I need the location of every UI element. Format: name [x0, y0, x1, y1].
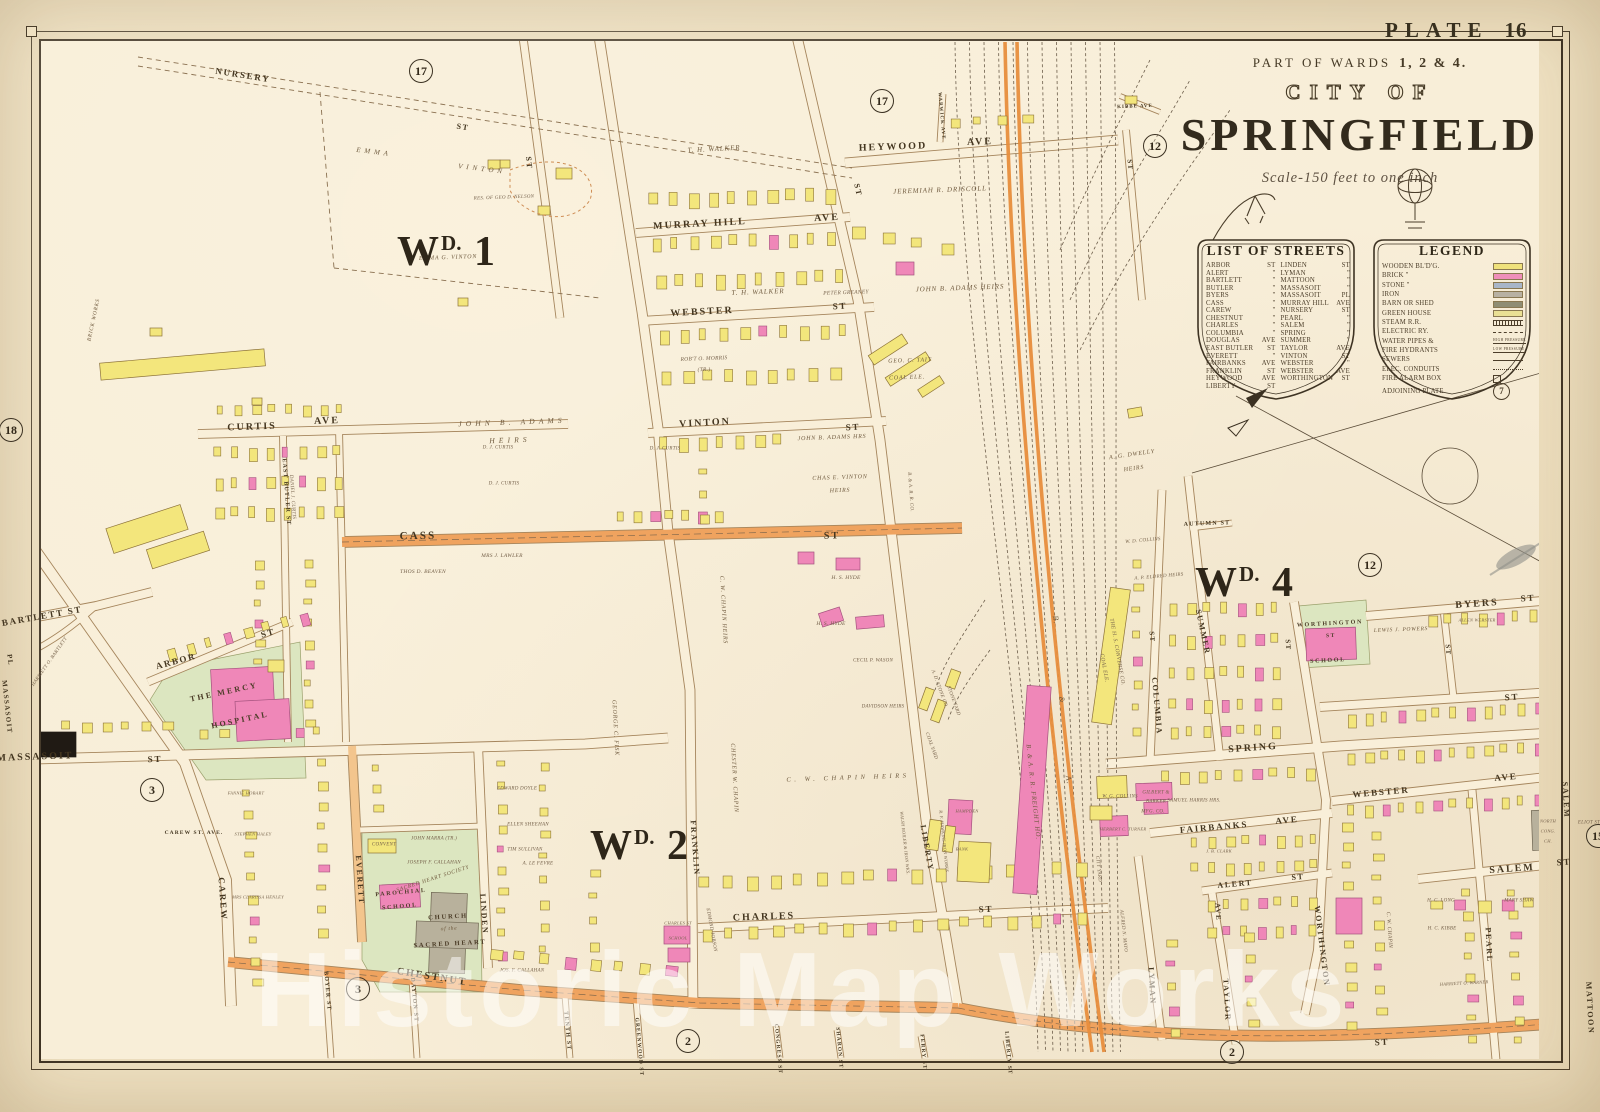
legend-symbol-solid — [1493, 360, 1523, 361]
street-list-item: NURSERYST — [1281, 307, 1351, 315]
street-list-item: TAYLORAVE — [1281, 345, 1351, 353]
street-list-item: BARTLETT" — [1206, 277, 1276, 285]
street-list-item: SALEM" — [1281, 322, 1351, 330]
globe-illustration — [1382, 158, 1452, 238]
street-list-item: PEARL" — [1281, 315, 1351, 323]
legend-item: BRICK " — [1382, 271, 1526, 280]
streets-column: ARBORSTALERT"BARTLETT"BUTLER"BYERS"CASS"… — [1206, 262, 1276, 388]
legend-item: SEWERS — [1382, 355, 1526, 364]
legend-symbol-sw — [1493, 263, 1523, 270]
street-list-item: FRANKLINST — [1206, 368, 1276, 376]
street-list-item: WEBSTER" — [1281, 360, 1351, 368]
street-list-item: CASS" — [1206, 300, 1276, 308]
street-list-item: MURRAY HILLAVE — [1281, 300, 1351, 308]
street-list-item: MASSASOIT" — [1281, 285, 1351, 293]
street-list-item: MASSASOITPL — [1281, 292, 1351, 300]
street-list-item: HEYWOODAVE — [1206, 375, 1276, 383]
railroad-mainline — [1005, 42, 1104, 1052]
legend-symbol-dashdot — [1493, 369, 1523, 370]
plate-heading: PLATE16 — [1385, 18, 1527, 43]
street-list-item: ARBORST — [1206, 262, 1276, 270]
legend-symbol-wp: LOW PRESSURE — [1493, 348, 1526, 353]
street-list-item: WORTHINGTONST — [1281, 375, 1351, 383]
legend-symbol-sw — [1493, 301, 1523, 308]
street-list-item: COLUMBIA" — [1206, 330, 1276, 338]
street-list-item: EVERETT" — [1206, 353, 1276, 361]
street-list-item: BYERS" — [1206, 292, 1276, 300]
legend-symbol-wp: HIGH PRESSURE — [1493, 339, 1526, 344]
streets-column: LINDENSTLYMAN"MATTOON"MASSASOIT"MASSASOI… — [1281, 262, 1351, 388]
legend-item: IRON — [1382, 290, 1526, 299]
part-of-wards: PART OF WARDS1, 2 & 4. — [1215, 55, 1505, 72]
legend-symbol-dash — [1493, 332, 1523, 333]
street-list-item: DOUGLASAVE — [1206, 337, 1276, 345]
legend-symbol-box — [1493, 375, 1501, 383]
map-canvas — [0, 0, 1600, 1112]
street-list-item: LINDENST — [1281, 262, 1351, 270]
street-list-item: EAST BUTLERST — [1206, 345, 1276, 353]
city-of-heading: CITY OF — [1245, 80, 1475, 105]
legend-symbol-sw — [1493, 291, 1523, 298]
street-list-item: LIBERTYST — [1206, 383, 1276, 391]
atlas-sheet: WD. 1WD. 2WD. 41717181212332215NURSERYST… — [0, 0, 1600, 1112]
streets-list: ARBORSTALERT"BARTLETT"BUTLER"BYERS"CASS"… — [1206, 262, 1350, 388]
street-list-item: SUMMER" — [1281, 337, 1351, 345]
legend-item: STEAM R.R. — [1382, 318, 1526, 327]
street-list-item: CHESTNUT" — [1206, 315, 1276, 323]
legend-items: WOODEN BL'D'G.BRICK "STONE "IRONBARN OR … — [1382, 262, 1526, 388]
legend-item: WATER PIPES &HIGH PRESSURE — [1382, 337, 1526, 346]
part-of-wards-label: PART OF WARDS — [1253, 55, 1391, 70]
legend-item: GREEN HOUSE — [1382, 309, 1526, 318]
legend-item: FIRE ALARM BOX — [1382, 374, 1526, 383]
ward-numbers: 1, 2 & 4. — [1399, 56, 1467, 71]
legend-item: ELECTRIC RY. — [1382, 327, 1526, 336]
street-list-item: VINTONST — [1281, 353, 1351, 361]
legend-symbol-sw — [1493, 273, 1523, 280]
street-list-item: SPRING" — [1281, 330, 1351, 338]
legend-item: WOODEN BL'D'G. — [1382, 262, 1526, 271]
legend-item: STONE " — [1382, 281, 1526, 290]
legend-symbol-sw — [1493, 310, 1523, 317]
list-of-streets-panel: LIST OF STREETS ARBORSTALERT"BARTLETT"BU… — [1190, 232, 1362, 404]
legend-item: ADJOINING PLATE7 — [1382, 383, 1526, 400]
legend-panel-title: LEGEND — [1366, 243, 1538, 259]
street-list-item: WEBSTERAVE — [1281, 368, 1351, 376]
border-corner-mark — [26, 26, 37, 37]
plate-label: PLATE — [1385, 18, 1488, 42]
streets-panel-title: LIST OF STREETS — [1190, 243, 1362, 259]
legend-item: BARN OR SHED — [1382, 299, 1526, 308]
legend-item: FIRE HYDRANTSLOW PRESSURE — [1382, 346, 1526, 355]
street-list-item: FAIRBANKSAVE — [1206, 360, 1276, 368]
street-list-item: CHARLES" — [1206, 322, 1276, 330]
plate-number: 16 — [1504, 18, 1527, 42]
street-list-item: CAREW" — [1206, 307, 1276, 315]
legend-symbol-circle: 7 — [1493, 383, 1510, 400]
street-list-item: ALERT" — [1206, 270, 1276, 278]
border-corner-mark — [1552, 26, 1563, 37]
legend-panel: LEGEND WOODEN BL'D'G.BRICK "STONE "IRONB… — [1366, 232, 1538, 404]
legend-item: ELEC. CONDUITS — [1382, 365, 1526, 374]
park-lots — [150, 600, 1370, 992]
street-list-item: MATTOON" — [1281, 277, 1351, 285]
street-list-item: LYMAN" — [1281, 270, 1351, 278]
city-title: SPRINGFIELD — [1180, 108, 1540, 161]
legend-symbol-sw — [1493, 282, 1523, 289]
legend-symbol-hatch — [1493, 320, 1523, 326]
street-list-item: BUTLER" — [1206, 285, 1276, 293]
